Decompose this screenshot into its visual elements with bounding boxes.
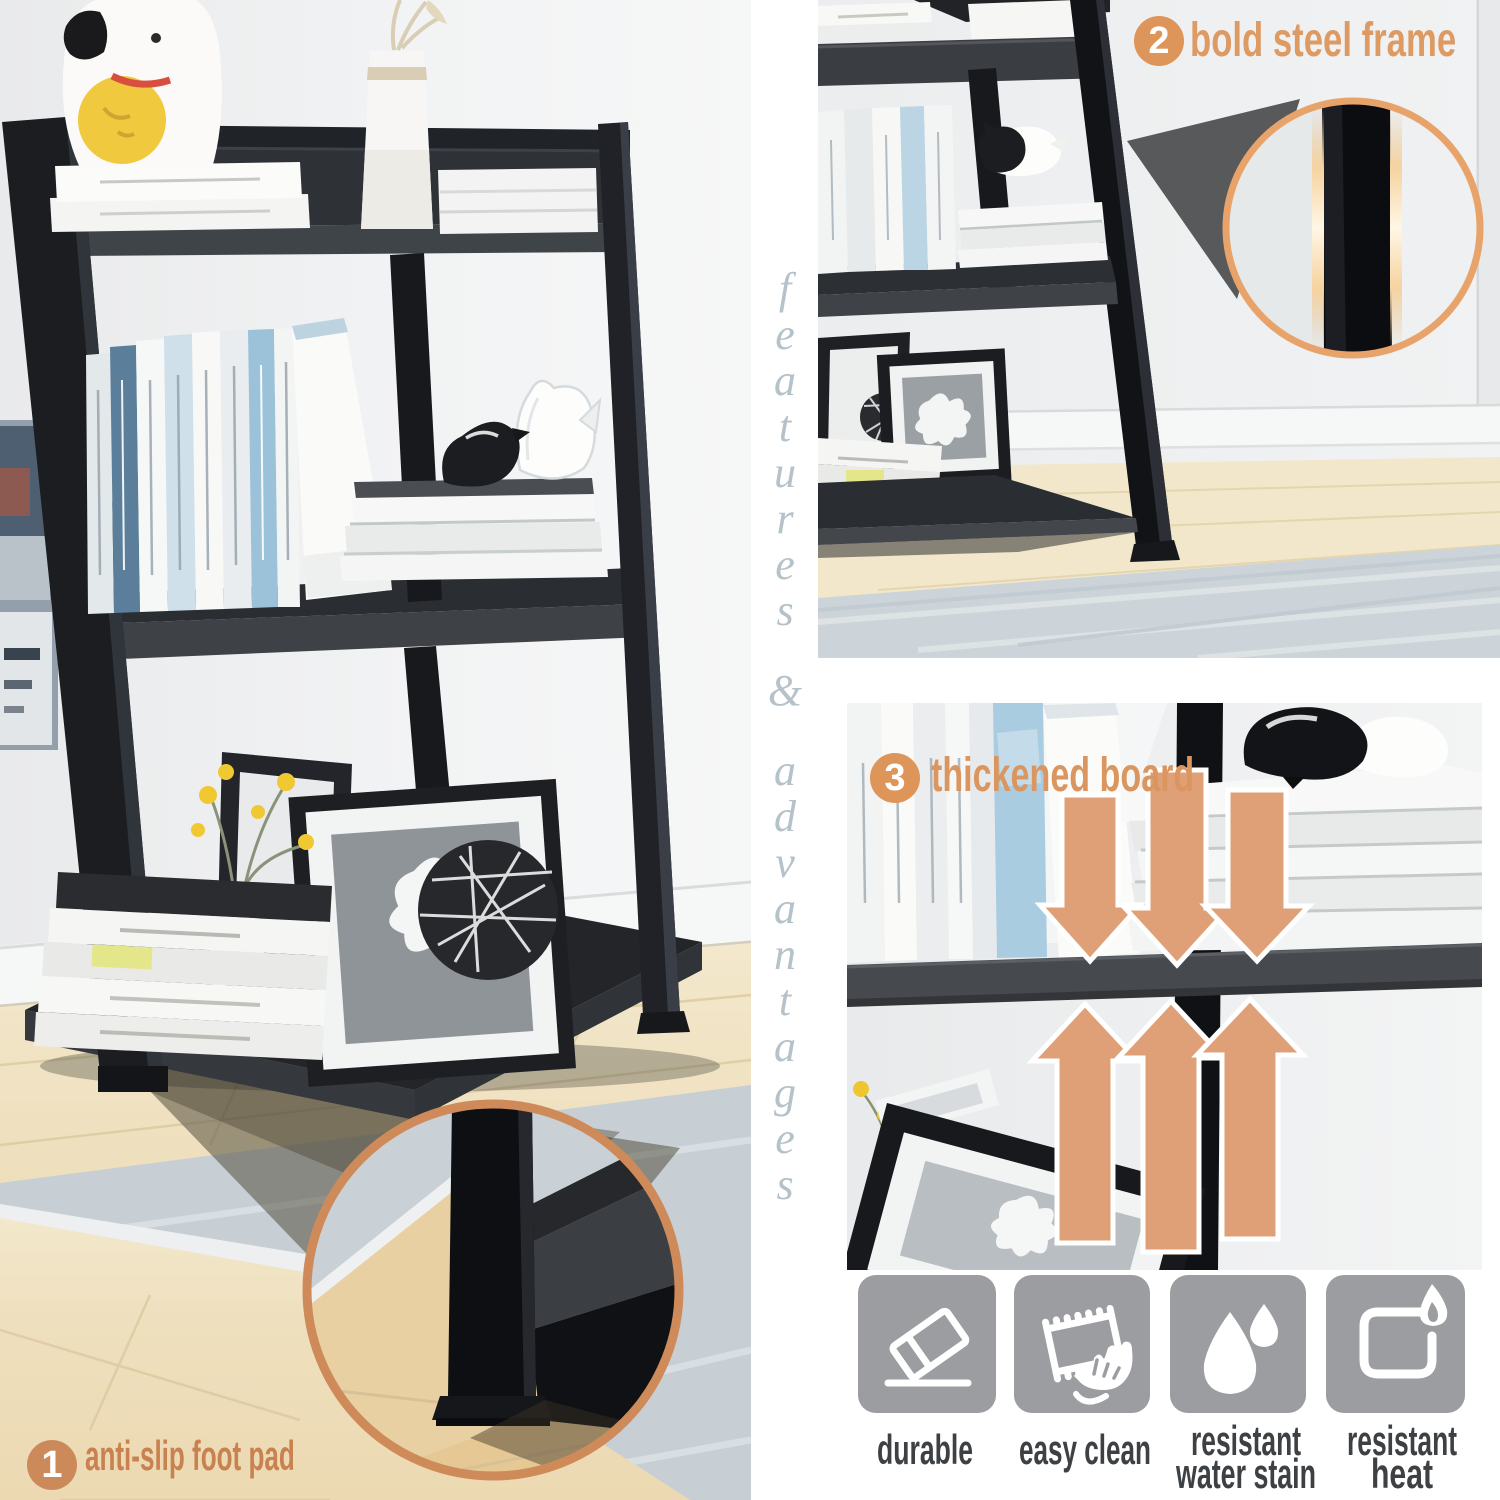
svg-text:durable: durable	[877, 1426, 973, 1473]
svg-text:easy clean: easy clean	[1019, 1426, 1151, 1473]
svg-text:water stain: water stain	[1175, 1450, 1316, 1497]
svg-text:heat: heat	[1371, 1450, 1433, 1497]
